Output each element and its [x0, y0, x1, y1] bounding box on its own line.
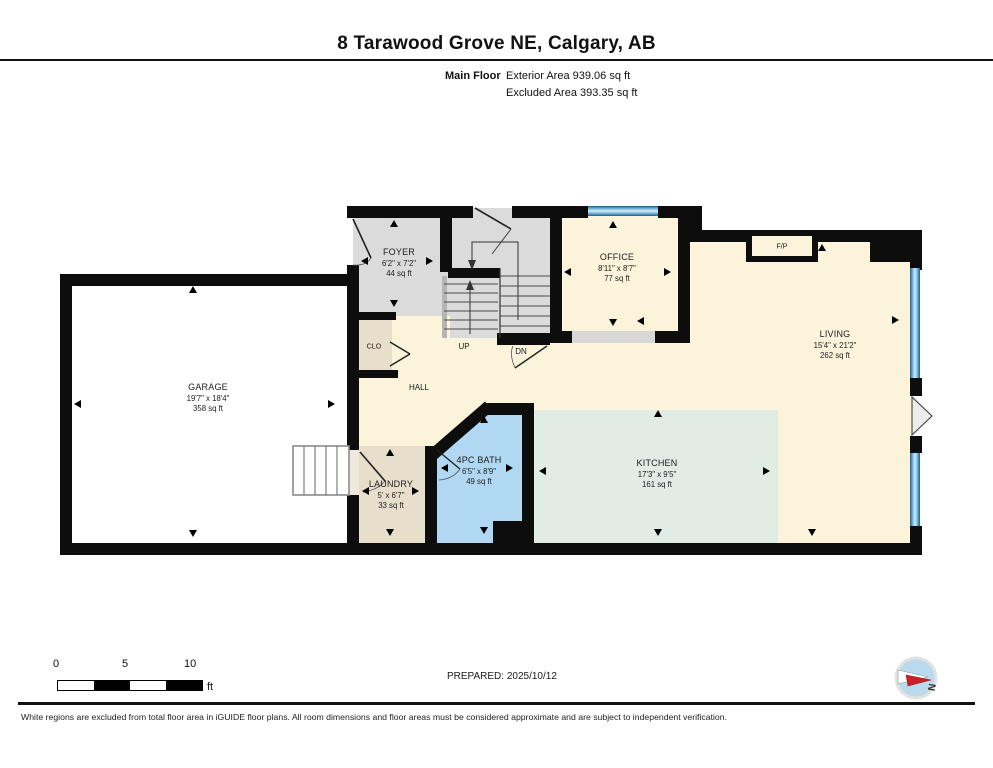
wall-segment	[347, 312, 396, 320]
dim-arrow-up	[390, 220, 398, 227]
scale-tick: 5	[122, 658, 128, 670]
wall-segment	[655, 331, 690, 343]
dim-arrow-left	[564, 268, 571, 276]
dim-arrow-left	[539, 467, 546, 475]
dim-arrow-right	[328, 400, 335, 408]
prepared-date: PREPARED: 2025/10/12	[447, 671, 557, 682]
dim-arrow-down	[808, 529, 816, 536]
wall-segment	[347, 495, 359, 543]
footer-disclaimer: White regions are excluded from total fl…	[21, 712, 727, 722]
room-label-laundry: LAUNDRY 5' x 6'7" 33 sq ft	[369, 479, 413, 511]
room-name: 4PC BATH	[457, 455, 502, 467]
dim-arrow-right	[412, 487, 419, 495]
floorplan-page: 8 Tarawood Grove NE, Calgary, AB Main Fl…	[0, 0, 993, 768]
room-name: OFFICE	[598, 252, 636, 264]
dim-arrow-right	[763, 467, 770, 475]
wall-segment	[678, 206, 690, 343]
side-door-swing	[912, 397, 932, 435]
wall-segment	[550, 331, 572, 343]
dim-arrow-right	[664, 268, 671, 276]
room-area: 49 sq ft	[457, 477, 502, 487]
wall-segment	[522, 403, 534, 543]
wall-segment	[440, 206, 452, 272]
dim-arrow-up	[480, 416, 488, 423]
room-dims: 17'3" x 9'5"	[637, 470, 678, 480]
dim-arrow-down	[654, 529, 662, 536]
room-dims: 8'11" x 8'7"	[598, 264, 636, 274]
room-dims: 6'2" x 7'2"	[382, 259, 416, 269]
wall-segment	[690, 230, 746, 242]
dim-arrow-down	[609, 319, 617, 326]
dim-arrow-up	[818, 244, 826, 251]
dim-arrow-right	[892, 316, 899, 324]
wall-segment	[347, 265, 359, 450]
fireplace-wall	[746, 256, 818, 262]
label-hall: HALL	[409, 383, 429, 393]
page-title: 8 Tarawood Grove NE, Calgary, AB	[0, 33, 993, 55]
room-dims: 15'4" x 21'2"	[814, 341, 857, 351]
floor-name: Main Floor	[445, 70, 501, 82]
room-name: GARAGE	[187, 382, 230, 394]
dim-arrow-up	[654, 410, 662, 417]
label-closet: CLO	[367, 341, 382, 350]
dim-arrow-up	[386, 449, 394, 456]
label-up: UP	[458, 342, 469, 352]
wall-segment	[347, 206, 473, 218]
wall-segment	[910, 378, 922, 396]
dim-arrow-right	[506, 464, 513, 472]
dim-arrow-left	[361, 257, 368, 265]
room-name: LAUNDRY	[369, 479, 413, 491]
room-area: 358 sq ft	[187, 404, 230, 414]
window-office	[588, 206, 658, 216]
dim-arrow-down	[386, 529, 394, 536]
room-dims: 5' x 6'7"	[369, 491, 413, 501]
exterior-area: Exterior Area 939.06 sq ft	[506, 70, 630, 82]
wall-segment	[60, 274, 72, 555]
wall-segment	[448, 268, 500, 278]
label-down: DN	[515, 347, 527, 357]
wall-segment	[60, 543, 922, 555]
compass-icon: N	[891, 653, 943, 705]
excluded-area: Excluded Area 393.35 sq ft	[506, 87, 637, 99]
scale-tick: 0	[53, 658, 59, 670]
room-area: 262 sq ft	[814, 351, 857, 361]
room-name: LIVING	[814, 329, 857, 341]
wall-segment	[550, 206, 562, 343]
wall-segment	[425, 446, 437, 543]
room-label-bath: 4PC BATH 6'5" x 8'9" 49 sq ft	[457, 455, 502, 487]
room-area: 77 sq ft	[598, 274, 636, 284]
room-label-kitchen: KITCHEN 17'3" x 9'5" 161 sq ft	[637, 458, 678, 490]
room-area: 33 sq ft	[369, 501, 413, 511]
dim-arrow-right	[426, 257, 433, 265]
wall-segment	[910, 436, 922, 453]
room-label-foyer: FOYER 6'2" x 7'2" 44 sq ft	[382, 247, 416, 279]
window-living-upper	[910, 268, 920, 378]
dim-arrow-down	[189, 530, 197, 537]
floorplan: GARAGE 19'7" x 18'4" 358 sq ft FOYER 6'2…	[60, 206, 940, 558]
dim-arrow-down	[390, 300, 398, 307]
window-living-lower	[910, 453, 920, 526]
wall-segment	[493, 521, 522, 543]
footer-divider	[18, 702, 975, 705]
scale-unit: ft	[207, 681, 213, 693]
wall-segment	[347, 370, 398, 378]
wall-segment	[497, 333, 550, 345]
room-dims: 6'5" x 8'9"	[457, 467, 502, 477]
room-label-garage: GARAGE 19'7" x 18'4" 358 sq ft	[187, 382, 230, 414]
wall-segment	[818, 230, 875, 242]
room-area: 44 sq ft	[382, 269, 416, 279]
garage-door-threshold	[347, 450, 359, 495]
dim-arrow-up	[189, 286, 197, 293]
dim-arrow-up	[609, 221, 617, 228]
dim-arrow-down	[480, 527, 488, 534]
scale-bar: 0 5 10 ft	[53, 658, 233, 700]
dim-arrow-left	[637, 317, 644, 325]
dim-arrow-left	[362, 487, 369, 495]
office-opening	[572, 331, 655, 343]
scale-tick: 10	[184, 658, 196, 670]
room-dims: 19'7" x 18'4"	[187, 394, 230, 404]
room-area: 161 sq ft	[637, 480, 678, 490]
room-name: KITCHEN	[637, 458, 678, 470]
stair-door-threshold	[473, 208, 512, 218]
room-label-living: LIVING 15'4" x 21'2" 262 sq ft	[814, 329, 857, 361]
header-divider	[0, 59, 993, 61]
scale-bar-segments	[57, 680, 203, 691]
dim-arrow-left	[74, 400, 81, 408]
wall-segment	[347, 206, 359, 217]
dim-arrow-left	[441, 464, 448, 472]
wall-segment	[60, 274, 359, 286]
room-garage	[72, 286, 347, 543]
room-name: FOYER	[382, 247, 416, 259]
label-fireplace: F/P	[776, 241, 787, 250]
room-label-office: OFFICE 8'11" x 8'7" 77 sq ft	[598, 252, 636, 284]
